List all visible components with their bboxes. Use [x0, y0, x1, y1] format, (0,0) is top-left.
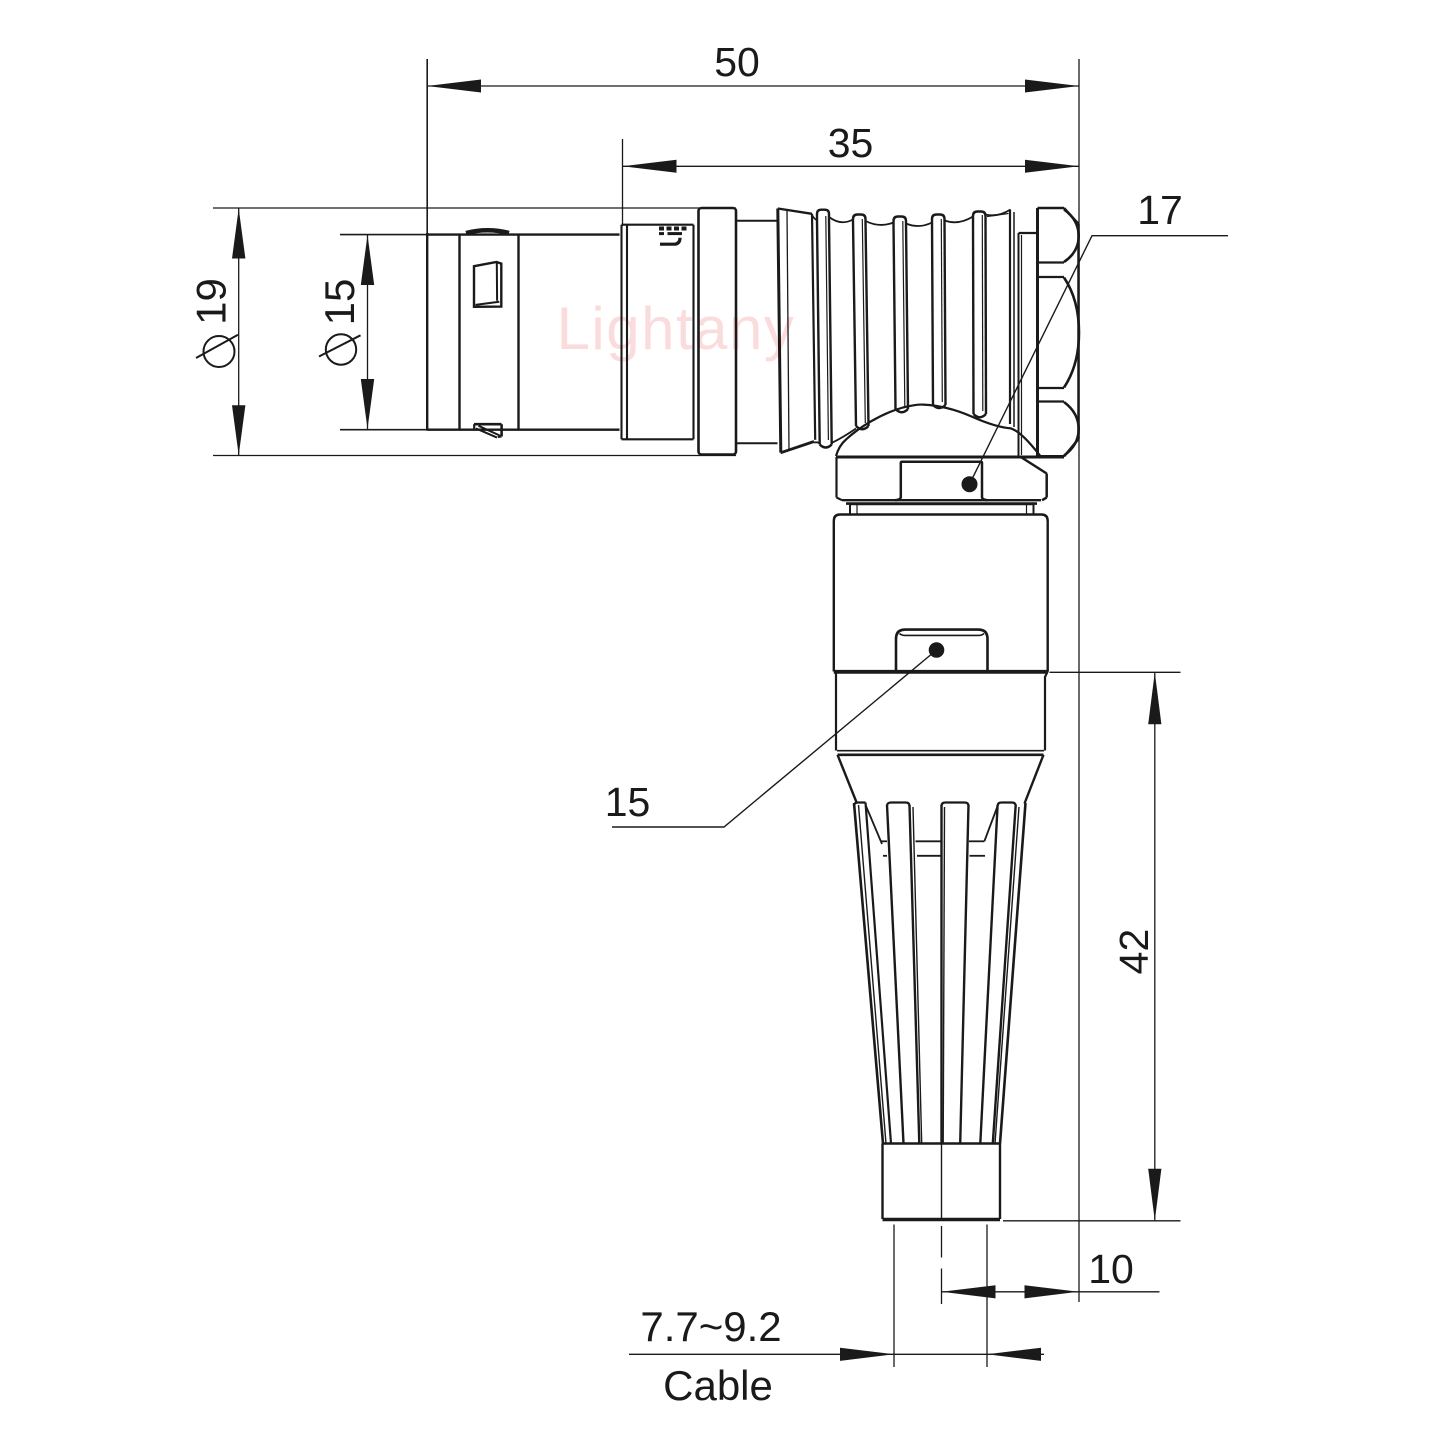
svg-text:15: 15 [316, 279, 363, 326]
svg-text:Cable: Cable [663, 1362, 773, 1409]
svg-text:35: 35 [828, 120, 874, 166]
svg-text:17: 17 [1137, 187, 1183, 233]
svg-text:7.7~9.2: 7.7~9.2 [640, 1303, 781, 1350]
svg-text:15: 15 [605, 779, 651, 825]
svg-text:10: 10 [1088, 1246, 1134, 1292]
svg-text:Lightany: Lightany [557, 295, 796, 362]
svg-text:42: 42 [1111, 929, 1157, 975]
svg-text:50: 50 [714, 39, 760, 85]
svg-text:19: 19 [188, 278, 235, 325]
